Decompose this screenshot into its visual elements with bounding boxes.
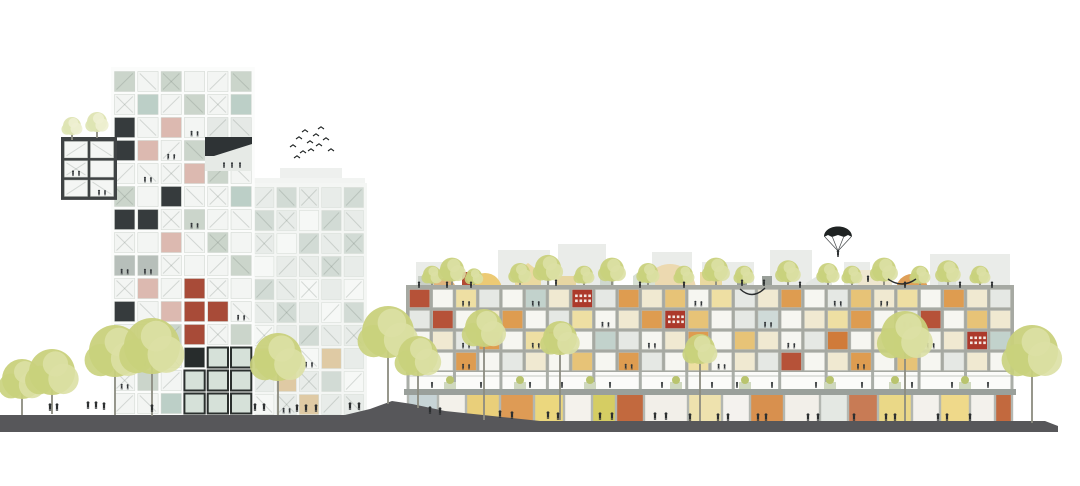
architectural-elevation-illustration — [0, 0, 1080, 486]
bird-flock — [290, 127, 334, 158]
parachutist — [824, 227, 852, 258]
elevation-canvas — [0, 0, 1080, 486]
middle-tower — [251, 168, 367, 418]
